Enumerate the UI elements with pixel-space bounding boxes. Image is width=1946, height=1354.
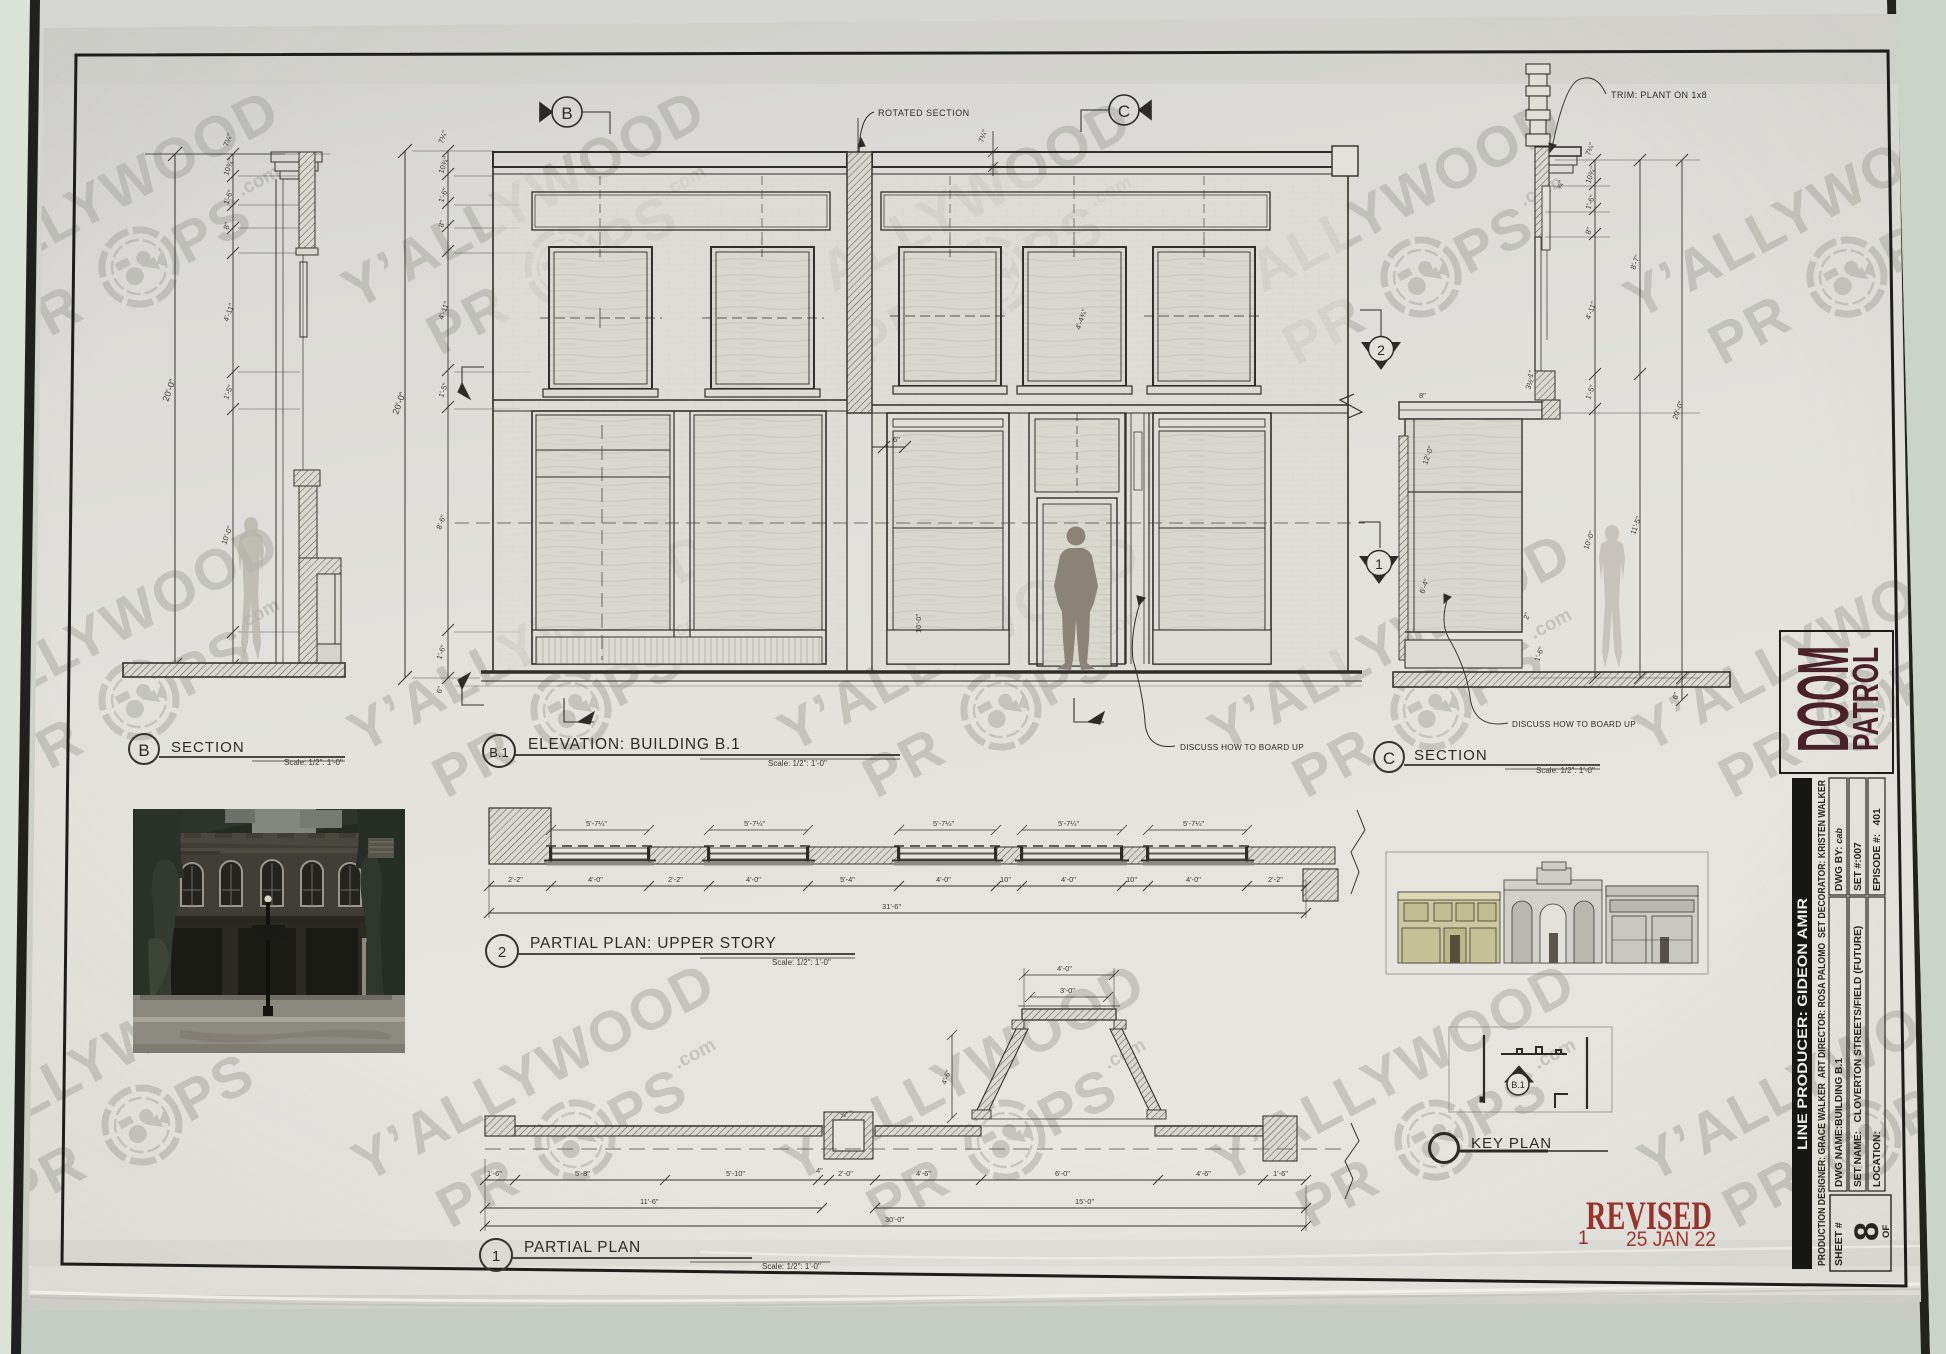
svg-text:ROTATED SECTION: ROTATED SECTION	[878, 108, 970, 118]
svg-text:Scale: 1/2": 1'-0": Scale: 1/2": 1'-0"	[284, 758, 343, 767]
svg-text:30'-0": 30'-0"	[885, 1215, 904, 1224]
svg-text:DISCUSS HOW TO BOARD UP: DISCUSS HOW TO BOARD UP	[1512, 720, 1636, 729]
svg-text:LINE PRODUCER: GIDEON AMIR: LINE PRODUCER: GIDEON AMIR	[1795, 898, 1810, 1150]
svg-text:15'-0": 15'-0"	[1075, 1197, 1094, 1206]
svg-text:2'-2": 2'-2"	[1268, 875, 1283, 884]
svg-text:Scale: 1/2": 1'-0": Scale: 1/2": 1'-0"	[762, 1262, 821, 1271]
svg-text:B.1: B.1	[1511, 1080, 1525, 1090]
svg-text:6": 6"	[893, 435, 900, 444]
svg-text:6'-0": 6'-0"	[1055, 1169, 1070, 1178]
svg-text:PARTIAL PLAN: UPPER STORY: PARTIAL PLAN: UPPER STORY	[530, 935, 777, 952]
svg-text:5'-7¼": 5'-7¼"	[586, 819, 608, 828]
svg-text:KEY PLAN: KEY PLAN	[1471, 1135, 1552, 1152]
svg-text:C: C	[1383, 749, 1395, 768]
svg-text:3'-0": 3'-0"	[1060, 986, 1075, 995]
svg-text:B: B	[561, 104, 572, 123]
svg-text:5'-7¼": 5'-7¼"	[744, 819, 766, 828]
svg-text:OF: OF	[1881, 1225, 1892, 1238]
svg-text:4'-6": 4'-6"	[1196, 1169, 1211, 1178]
svg-text:4'-0": 4'-0"	[1057, 964, 1072, 973]
svg-text:2'-0": 2'-0"	[838, 1169, 853, 1178]
svg-text:4'-6": 4'-6"	[916, 1169, 931, 1178]
svg-text:DISCUSS HOW TO BOARD UP: DISCUSS HOW TO BOARD UP	[1180, 743, 1304, 752]
svg-text:1: 1	[1578, 1228, 1589, 1249]
svg-text:5'-10": 5'-10"	[726, 1169, 745, 1178]
svg-text:4'-0": 4'-0"	[746, 875, 761, 884]
svg-text:5'-7¼": 5'-7¼"	[1183, 819, 1205, 828]
svg-text:PATROL: PATROL	[1845, 647, 1886, 751]
svg-text:SET #:007: SET #:007	[1853, 842, 1864, 891]
svg-text:4'-0": 4'-0"	[936, 875, 951, 884]
svg-text:1: 1	[492, 1248, 500, 1265]
svg-text:SECTION: SECTION	[1414, 747, 1488, 764]
svg-text:B: B	[138, 741, 149, 760]
svg-text:Scale: 1/2": 1'-0": Scale: 1/2": 1'-0"	[772, 958, 831, 967]
svg-text:1'-6": 1'-6"	[487, 1169, 502, 1178]
svg-text:1: 1	[1375, 556, 1383, 572]
svg-text:8": 8"	[1419, 391, 1426, 400]
svg-text:EPISODE #: 401: EPISODE #: 401	[1872, 808, 1883, 891]
svg-text:DWG NAME:BUILDING B.1: DWG NAME:BUILDING B.1	[1834, 1058, 1845, 1187]
svg-text:10'-0": 10'-0"	[914, 614, 923, 633]
svg-text:31'-6": 31'-6"	[882, 902, 901, 911]
svg-text:⅝": ⅝"	[840, 1112, 849, 1119]
svg-text:4'-0": 4'-0"	[1061, 875, 1076, 884]
svg-text:B.1: B.1	[489, 745, 509, 760]
svg-text:PARTIAL PLAN: PARTIAL PLAN	[524, 1239, 641, 1256]
svg-text:PRODUCTION DESIGNER: GRACE WAL: PRODUCTION DESIGNER: GRACE WALKER ART DI…	[1817, 779, 1828, 1266]
svg-text:SHEET #: SHEET #	[1833, 1222, 1845, 1266]
svg-text:4'-0": 4'-0"	[588, 875, 603, 884]
svg-text:LOCATION:: LOCATION:	[1872, 1131, 1883, 1187]
svg-text:25 JAN 22: 25 JAN 22	[1626, 1228, 1716, 1251]
svg-text:2: 2	[498, 944, 506, 961]
svg-text:SET NAME: CLOVERTON STREETS/: SET NAME: CLOVERTON STREETS/FIELD (FUTUR…	[1853, 926, 1864, 1187]
svg-text:10": 10"	[1126, 875, 1137, 884]
svg-text:2: 2	[1377, 342, 1385, 358]
svg-text:TRIM: PLANT ON 1x8: TRIM: PLANT ON 1x8	[1611, 90, 1707, 100]
svg-text:Scale: 1/2": 1'-0": Scale: 1/2": 1'-0"	[768, 759, 827, 768]
svg-text:2'-2": 2'-2"	[508, 875, 523, 884]
svg-text:11'-6": 11'-6"	[640, 1197, 659, 1206]
svg-text:4": 4"	[816, 1166, 823, 1175]
svg-text:5'-7¼": 5'-7¼"	[933, 819, 955, 828]
svg-text:5'-7¼": 5'-7¼"	[1058, 819, 1080, 828]
svg-text:10": 10"	[1000, 875, 1011, 884]
svg-text:SECTION: SECTION	[171, 739, 245, 756]
svg-text:4'-0": 4'-0"	[1186, 875, 1201, 884]
svg-text:ELEVATION: BUILDING B.1: ELEVATION: BUILDING B.1	[528, 736, 741, 753]
svg-text:Scale: 1/2": 1'-0": Scale: 1/2": 1'-0"	[1536, 766, 1595, 775]
svg-text:5'-8": 5'-8"	[575, 1169, 590, 1178]
svg-text:DWG BY: cab: DWG BY: cab	[1834, 828, 1845, 891]
svg-text:C: C	[1118, 102, 1130, 121]
svg-text:1'-6": 1'-6"	[1273, 1169, 1288, 1178]
svg-text:2'-2": 2'-2"	[668, 875, 683, 884]
svg-text:5'-4": 5'-4"	[840, 875, 855, 884]
